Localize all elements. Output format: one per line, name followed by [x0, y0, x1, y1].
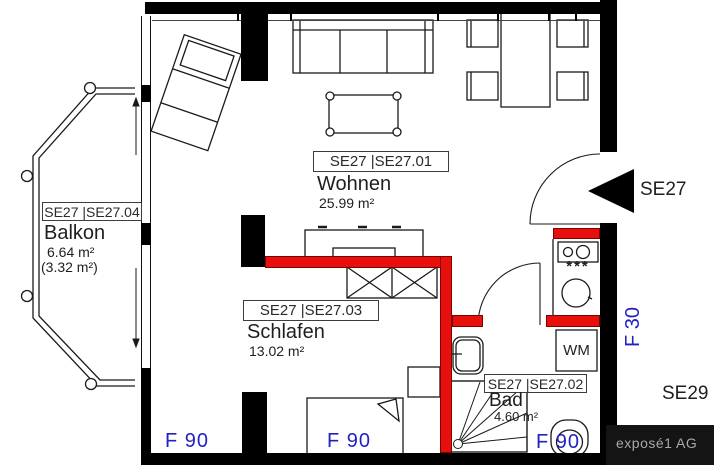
coffee-table [326, 92, 401, 136]
bathroom-door [478, 263, 540, 325]
room-name-balkon: Balkon [44, 222, 105, 245]
room-area-balkon: 6.64 m² [47, 244, 94, 260]
fire-rating-f90-mid: F 90 [327, 430, 371, 453]
window-left-1 [141, 16, 151, 85]
wall-pier-top [241, 2, 268, 81]
wall-top-tick [237, 14, 239, 21]
wall-left-pier3 [141, 368, 151, 465]
fire-wall-vertical [440, 256, 452, 453]
wall-pier-mid [241, 215, 265, 267]
wall-top-tick [437, 14, 439, 21]
fire-rating-f90-right: F 90 [536, 431, 580, 454]
window-left-3 [141, 245, 151, 368]
room-area-bad: 4.60 m² [494, 409, 538, 424]
room-tag-wohnen: SE27 |SE27.01 [313, 151, 449, 172]
wall-pier-bottom [242, 392, 267, 453]
window-left-2 [141, 102, 151, 223]
room-area-schlafen: 13.02 m² [249, 343, 304, 359]
wall-left-pier1 [141, 85, 151, 102]
wall-top-tick [497, 14, 499, 21]
room-tag-schlafen: SE27 |SE27.03 [243, 300, 379, 321]
unit-entry-arrow [588, 169, 634, 213]
room-tag-balkon: SE27 |SE27.04 [42, 202, 142, 221]
floor-plan: SE27 |SE27.01 Wohnen 25.99 m² SE27 |SE27… [0, 0, 714, 465]
window-arrows [133, 98, 139, 347]
room-area-wohnen: 25.99 m² [319, 195, 374, 211]
logo-plate: exposé1 AG [606, 425, 714, 465]
wall-right-upper [600, 0, 617, 152]
wall-bottom [141, 453, 617, 465]
room-name-schlafen: Schlafen [247, 321, 325, 344]
room-area-balkon-secondary: (3.32 m²) [41, 259, 98, 275]
wall-top-tick [548, 14, 550, 21]
fire-rating-f30: F 30 [622, 292, 644, 362]
lounge-chair [151, 35, 241, 151]
wall-top-tick [290, 14, 292, 21]
room-name-wohnen: Wohnen [317, 173, 391, 196]
wall-top-inner-line [152, 20, 600, 21]
fire-rating-f90-left: F 90 [165, 430, 209, 453]
fire-wall-bath-left [452, 315, 483, 327]
wardrobe [347, 267, 437, 298]
wall-top [145, 2, 617, 14]
logo-text: exposé1 AG [616, 435, 697, 451]
fire-wall-bath-right [546, 315, 600, 327]
cooktop-stars: *** [557, 258, 599, 275]
wall-top-tick [575, 14, 577, 21]
kitchen-niche [553, 239, 598, 318]
dining-set [467, 13, 588, 107]
fire-wall-horizontal [265, 256, 452, 268]
neighbor-unit-label: SE29 [662, 383, 708, 405]
washing-machine-label: WM [556, 330, 597, 371]
wall-left-pier2 [141, 223, 151, 245]
unit-label: SE27 [640, 179, 686, 201]
fire-wall-kitchen-top [553, 228, 600, 239]
kitchen-counter [305, 227, 423, 258]
sofa [293, 20, 433, 73]
